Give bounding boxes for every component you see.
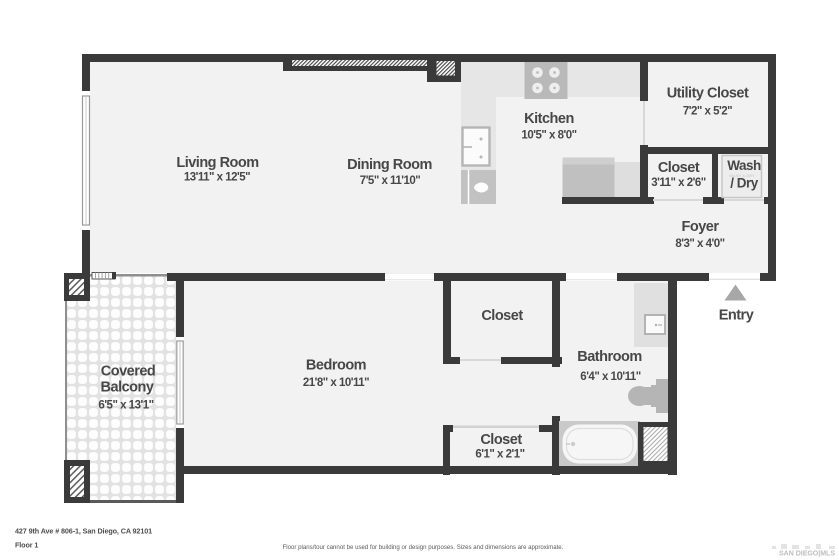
svg-text:Utility Closet: Utility Closet: [667, 86, 749, 102]
svg-text:Entry: Entry: [719, 308, 754, 324]
svg-text:Living Room: Living Room: [176, 155, 258, 171]
svg-text:Floor plans/tour cannot be use: Floor plans/tour cannot be used for buil…: [283, 544, 564, 551]
svg-text:Floor 1: Floor 1: [15, 541, 38, 550]
svg-text:6'5" x 13'1": 6'5" x 13'1": [98, 400, 153, 412]
svg-text:Balcony: Balcony: [101, 380, 154, 396]
svg-text:Closet: Closet: [480, 432, 522, 448]
svg-text:Wash: Wash: [727, 158, 761, 173]
svg-text:Closet: Closet: [658, 160, 700, 176]
svg-text:21'8" x 10'11": 21'8" x 10'11": [303, 377, 369, 389]
svg-text:3'11" x 2'6": 3'11" x 2'6": [651, 177, 706, 189]
svg-text:SAN DIEGO|MLS: SAN DIEGO|MLS: [779, 551, 835, 558]
svg-text:Foyer: Foyer: [682, 219, 720, 235]
svg-text:13'11" x 12'5": 13'11" x 12'5": [184, 172, 250, 184]
svg-text:10'5" x 8'0": 10'5" x 8'0": [521, 130, 576, 142]
svg-text:Kitchen: Kitchen: [524, 111, 574, 127]
svg-text:Bathroom: Bathroom: [577, 349, 641, 365]
svg-text:6'1" x 2'1": 6'1" x 2'1": [475, 449, 524, 461]
svg-text:427 9th Ave # 806-1, San Diego: 427 9th Ave # 806-1, San Diego, CA 92101: [15, 527, 152, 536]
svg-text:Bedroom: Bedroom: [306, 358, 366, 374]
svg-text:Dining Room: Dining Room: [347, 157, 432, 173]
svg-text:8'3" x 4'0": 8'3" x 4'0": [675, 238, 724, 250]
svg-text:Closet: Closet: [481, 308, 523, 324]
svg-text:Covered: Covered: [101, 364, 156, 380]
svg-text:7'5" x 11'10": 7'5" x 11'10": [360, 175, 420, 187]
svg-text:6'4" x 10'11": 6'4" x 10'11": [580, 371, 640, 383]
svg-text:/ Dry: / Dry: [730, 176, 759, 191]
svg-text:7'2" x 5'2": 7'2" x 5'2": [683, 106, 732, 118]
